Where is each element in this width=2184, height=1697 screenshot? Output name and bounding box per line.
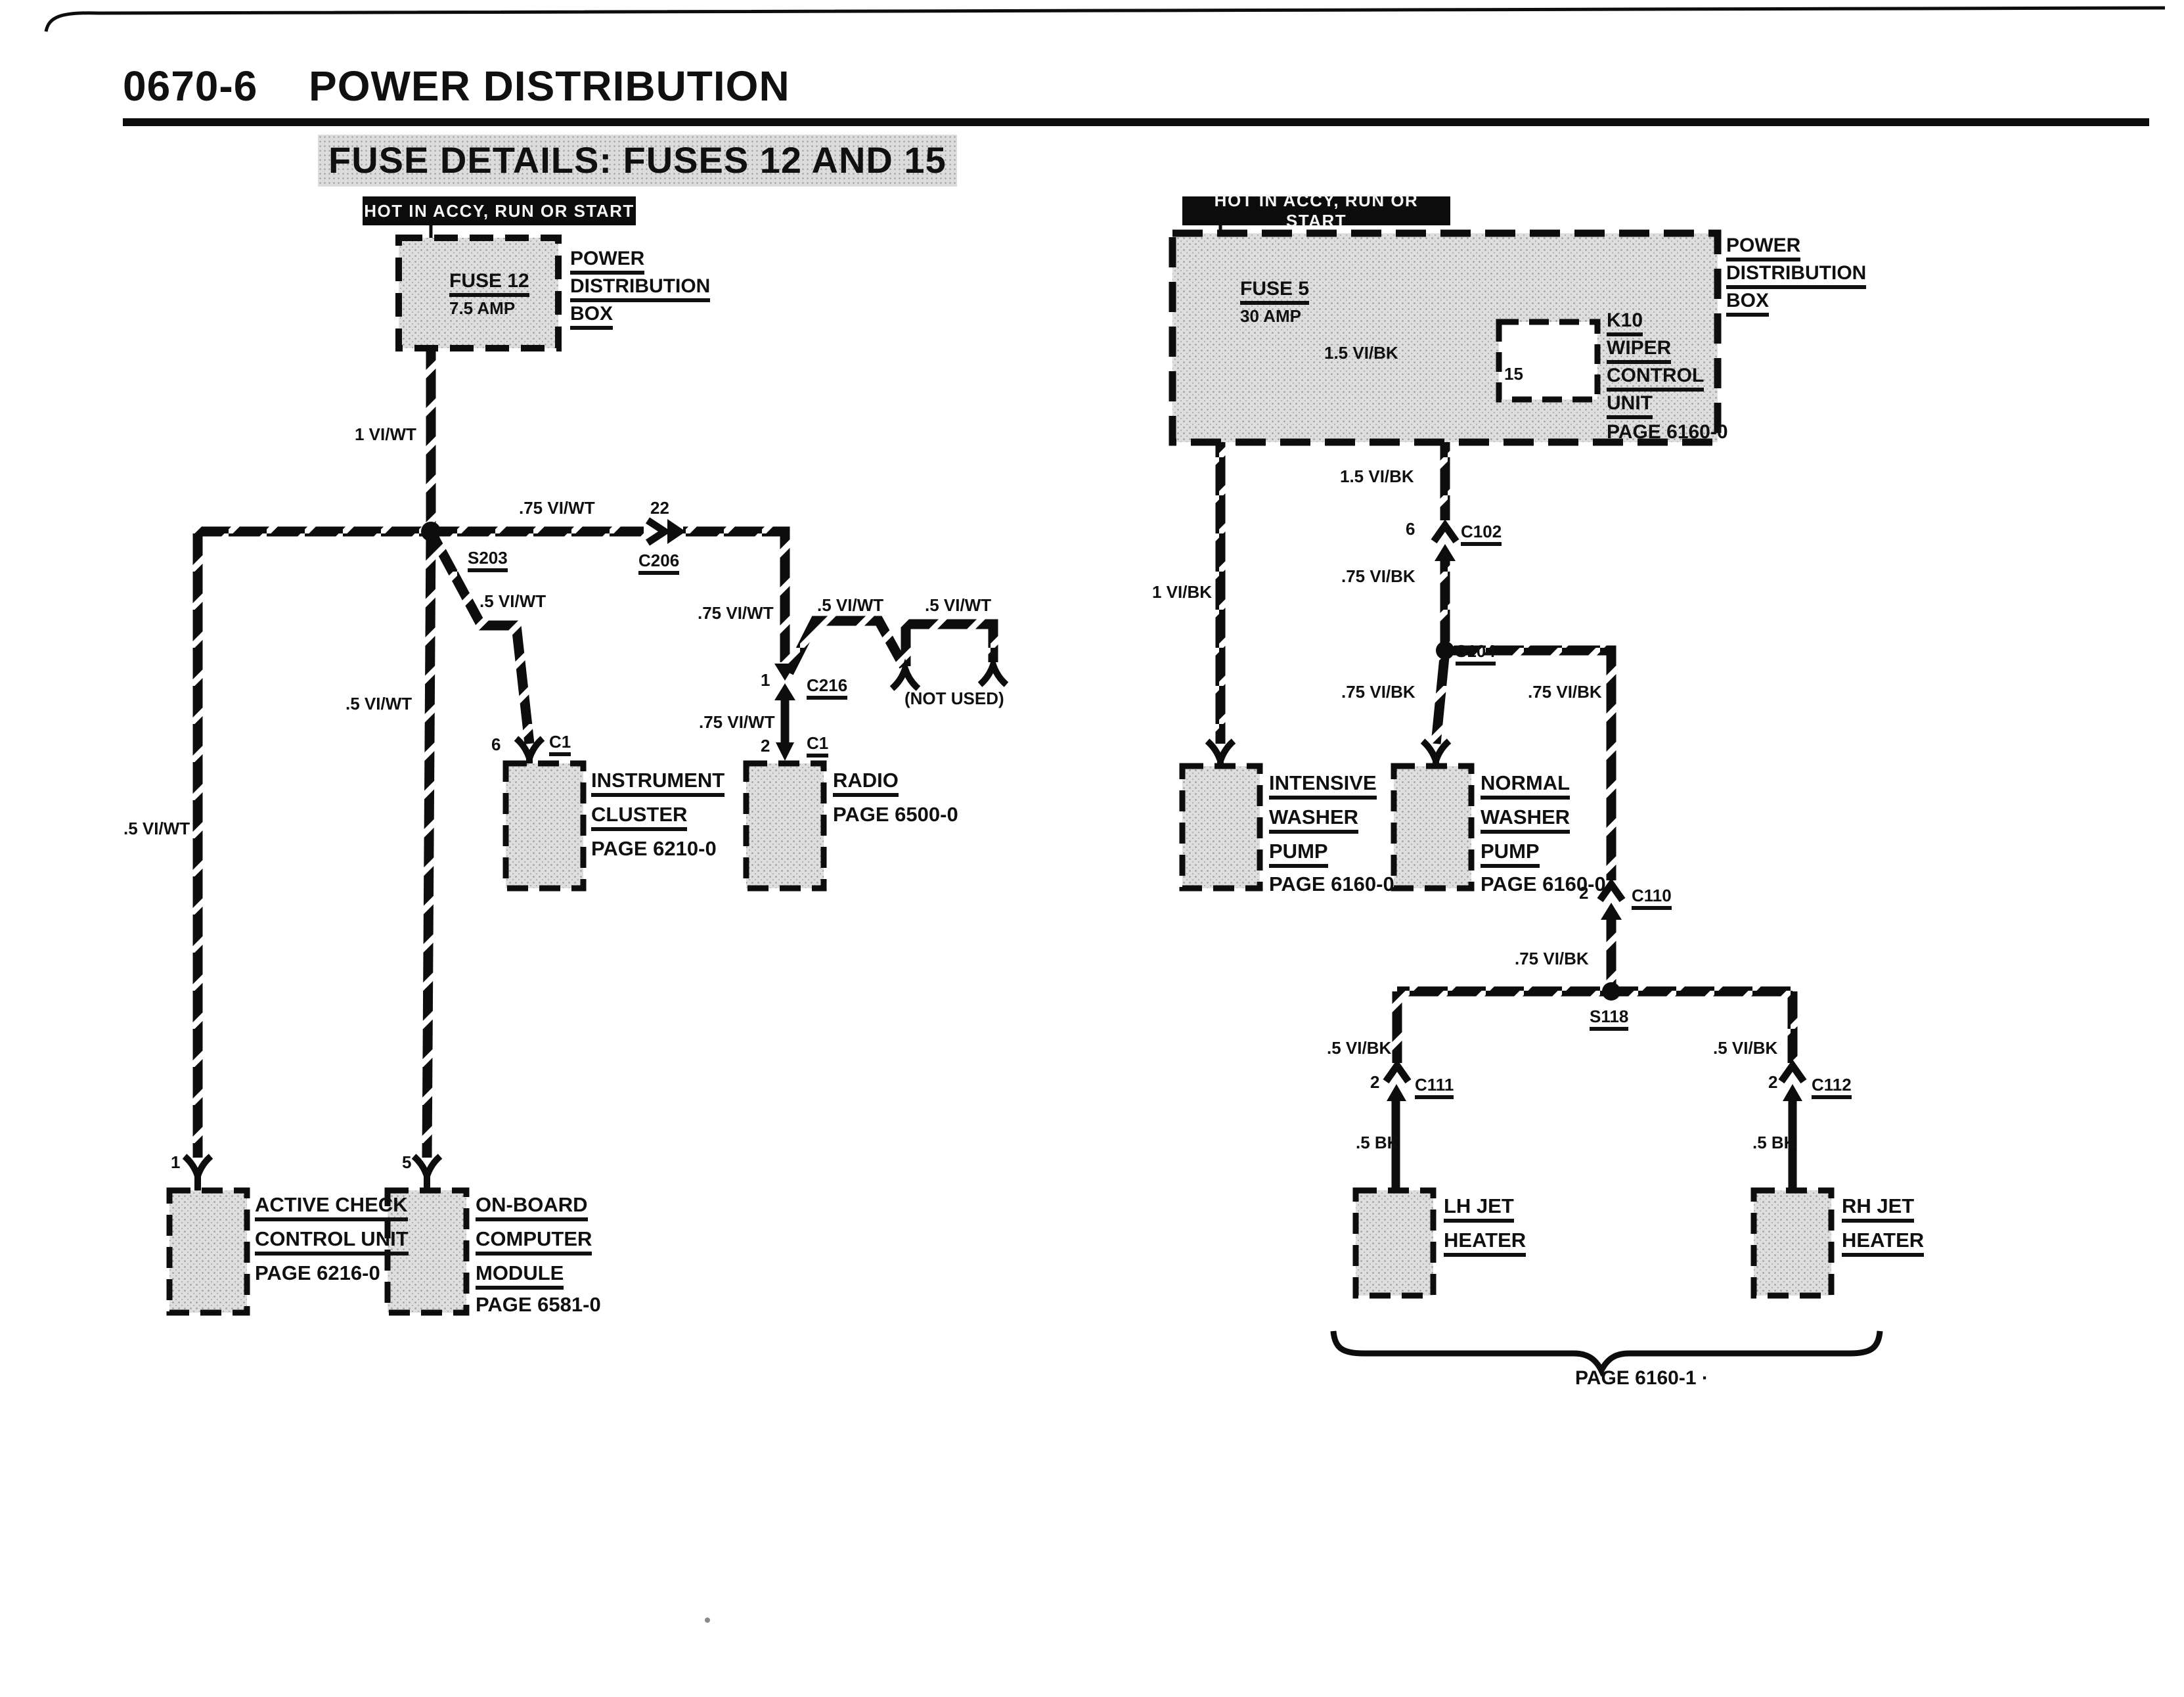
left-hot-banner: HOT IN ACCY, RUN OR START bbox=[363, 196, 636, 225]
page-subtitle: FUSE DETAILS: FUSES 12 AND 15 bbox=[318, 135, 957, 187]
intensive-washer-pump-box bbox=[1182, 766, 1260, 888]
radio-box bbox=[746, 763, 824, 888]
wire-label-5bk-rh: .5 BK bbox=[1752, 1134, 1796, 1152]
wire-label-75viwt-a: .75 VI/WT bbox=[519, 499, 595, 517]
wire-label-5viwt-obc: .5 VI/WT bbox=[345, 695, 412, 713]
fuse5-name: FUSE 5 bbox=[1240, 279, 1309, 305]
obc-label-2: COMPUTER bbox=[476, 1229, 592, 1256]
right-pdb-label-3: BOX bbox=[1726, 290, 1769, 317]
splice-s203-label: S203 bbox=[468, 549, 508, 572]
rh-jet-heater-box bbox=[1754, 1190, 1831, 1296]
wire-label-5vibk-rh: .5 VI/BK bbox=[1713, 1039, 1777, 1057]
instrument-label-2: CLUSTER bbox=[591, 804, 687, 831]
scan-speck bbox=[705, 1618, 710, 1623]
pin-15: 15 bbox=[1504, 365, 1523, 383]
splice-s104-label: S104 bbox=[1456, 643, 1496, 666]
radio-label-1: RADIO bbox=[833, 770, 899, 797]
normal-washer-pump-box bbox=[1394, 766, 1471, 888]
normal-pin-fork-icon bbox=[1423, 741, 1449, 766]
normal-label-2: WASHER bbox=[1481, 807, 1570, 834]
pin5-fork-icon bbox=[414, 1156, 440, 1190]
wire-label-5vibk-lh: .5 VI/BK bbox=[1327, 1039, 1391, 1057]
wire-label-5viwt-active: .5 VI/WT bbox=[123, 820, 190, 838]
component-boxes bbox=[169, 233, 1831, 1313]
obc-label-1: ON-BOARD bbox=[476, 1194, 588, 1221]
connector-c1a-label: C1 bbox=[549, 733, 571, 756]
connector-c206-arrow-icon bbox=[667, 519, 686, 544]
connector-c112-icon bbox=[1781, 1066, 1804, 1081]
notused-fork2-icon bbox=[980, 665, 1006, 685]
page-ref-brace-icon bbox=[1333, 1331, 1880, 1370]
intensive-label-3: PUMP bbox=[1269, 841, 1328, 868]
manual-page: 0670-6 POWER DISTRIBUTION FUSE DETAILS: … bbox=[0, 0, 2184, 1697]
wire-label-5viwt-instr: .5 VI/WT bbox=[479, 593, 546, 610]
pin-6: 6 bbox=[491, 736, 501, 754]
pin1-fork-icon bbox=[185, 1156, 211, 1190]
normal-label-3: PUMP bbox=[1481, 841, 1540, 868]
lh-jet-label-1: LH JET bbox=[1444, 1196, 1514, 1223]
wire-5viwt-obc bbox=[427, 532, 431, 1158]
active-label-1: ACTIVE CHECK bbox=[255, 1194, 408, 1221]
connector-c112-label: C112 bbox=[1812, 1076, 1852, 1099]
k10-label-2: WIPER bbox=[1607, 338, 1671, 364]
page-title: POWER DISTRIBUTION bbox=[309, 64, 790, 108]
fuse5-rating: 30 AMP bbox=[1240, 307, 1301, 325]
right-hot-banner: HOT IN ACCY, RUN OR START bbox=[1182, 196, 1450, 225]
k10-page: PAGE 6160-0 bbox=[1607, 422, 1728, 443]
page-ref-6160-1: PAGE 6160-1 · bbox=[1575, 1368, 1708, 1389]
k10-box bbox=[1499, 322, 1597, 399]
wire-label-5viwt-nu1: .5 VI/WT bbox=[817, 597, 883, 614]
pin-2-c1: 2 bbox=[761, 737, 770, 755]
wire-label-15vibk-h: 1.5 VI/BK bbox=[1324, 344, 1398, 362]
k10-label-1: K10 bbox=[1607, 310, 1643, 336]
doc-number: 0670-6 bbox=[123, 64, 257, 108]
right-pdb-label-2: DISTRIBUTION bbox=[1726, 263, 1866, 289]
connector-c110-label: C110 bbox=[1632, 887, 1672, 910]
wire-label-75vibk-2: .75 VI/BK bbox=[1341, 683, 1415, 701]
wire-75vibk-normal bbox=[1436, 650, 1445, 744]
k10-label-4: UNIT bbox=[1607, 393, 1653, 419]
junction-s104-icon bbox=[1436, 641, 1454, 660]
wire-label-15vibk-v: 1.5 VI/BK bbox=[1340, 468, 1414, 486]
connector-c1b-label: C1 bbox=[807, 735, 828, 758]
connector-c102-label: C102 bbox=[1461, 523, 1502, 546]
lh-jet-heater-box bbox=[1356, 1190, 1433, 1296]
lh-jet-label-2: HEATER bbox=[1444, 1230, 1526, 1257]
k10-label-3: CONTROL bbox=[1607, 365, 1704, 392]
wire-label-75vibk-4: .75 VI/BK bbox=[1515, 950, 1589, 968]
intensive-label-1: INTENSIVE bbox=[1269, 773, 1377, 800]
wire-label-5bk-lh: .5 BK bbox=[1356, 1134, 1399, 1152]
pin-2-c111: 2 bbox=[1370, 1074, 1379, 1091]
connector-c112-arrow-icon bbox=[1783, 1084, 1802, 1101]
wire-label-1vibk: 1 VI/BK bbox=[1152, 583, 1212, 601]
connector-c216-label: C216 bbox=[807, 677, 847, 700]
wire-label-75vibk-3: .75 VI/BK bbox=[1528, 683, 1602, 701]
pin-22: 22 bbox=[650, 499, 669, 517]
junction-s118-icon bbox=[1602, 982, 1620, 1001]
wire-5viwt-nu2 bbox=[906, 624, 993, 666]
active-page: PAGE 6216-0 bbox=[255, 1263, 380, 1284]
active-label-2: CONTROL UNIT bbox=[255, 1229, 409, 1256]
connector-c111-icon bbox=[1386, 1066, 1408, 1081]
radio-page: PAGE 6500-0 bbox=[833, 804, 958, 826]
pin-5-obc: 5 bbox=[402, 1154, 411, 1171]
intensive-pin-fork-icon bbox=[1207, 741, 1234, 766]
wire-5viwt-active bbox=[198, 532, 431, 1158]
instrument-label-1: INSTRUMENT bbox=[591, 770, 724, 797]
rh-jet-label-2: HEATER bbox=[1842, 1230, 1924, 1257]
radio-pin-arrow-icon bbox=[776, 742, 794, 761]
connector-c102-icon bbox=[1434, 526, 1456, 541]
left-pdb-label-3: BOX bbox=[570, 304, 613, 330]
connector-c111-label: C111 bbox=[1415, 1076, 1454, 1099]
obc-page: PAGE 6581-0 bbox=[476, 1294, 601, 1316]
left-pdb-label-1: POWER bbox=[570, 248, 644, 275]
connector-c110-arrow-icon bbox=[1601, 903, 1622, 920]
active-check-box bbox=[169, 1190, 247, 1313]
left-pdb-label-2: DISTRIBUTION bbox=[570, 276, 710, 302]
header-rule bbox=[123, 118, 2149, 126]
junction-s203-icon bbox=[421, 522, 441, 541]
fuse12-rating: 7.5 AMP bbox=[449, 300, 515, 317]
rh-jet-label-1: RH JET bbox=[1842, 1196, 1914, 1223]
connector-c206-label: C206 bbox=[638, 552, 679, 575]
pin-1-c216: 1 bbox=[761, 671, 770, 689]
pin-2-c112: 2 bbox=[1768, 1074, 1777, 1091]
pin-2-c110: 2 bbox=[1579, 884, 1588, 902]
connector-c102-arrow-icon bbox=[1435, 544, 1456, 561]
notused-fork1-icon bbox=[892, 669, 918, 689]
instrument-cluster-box bbox=[506, 763, 583, 888]
obc-label-3: MODULE bbox=[476, 1263, 564, 1290]
left-diagram-wires bbox=[198, 222, 993, 1158]
pin-6-c102: 6 bbox=[1406, 520, 1415, 538]
wire-5viwt-nu1 bbox=[789, 621, 904, 673]
connector-c216-arrow-icon bbox=[774, 683, 795, 700]
not-used-label: (NOT USED) bbox=[904, 690, 1004, 708]
right-pdb-label-1: POWER bbox=[1726, 235, 1800, 261]
instrument-page: PAGE 6210-0 bbox=[591, 838, 717, 860]
wiring-diagram-canvas bbox=[0, 0, 2184, 1697]
fuse12-name: FUSE 12 bbox=[449, 271, 529, 297]
wire-label-75viwt-b: .75 VI/WT bbox=[698, 604, 774, 622]
connector-c206-icon bbox=[648, 520, 665, 543]
wire-label-75viwt-c: .75 VI/WT bbox=[699, 713, 775, 731]
connector-c111-arrow-icon bbox=[1387, 1084, 1406, 1101]
wire-label-1viwt: 1 VI/WT bbox=[355, 426, 416, 443]
wire-75viwt-b bbox=[683, 532, 785, 662]
page-top-rule bbox=[46, 8, 2165, 32]
pin-1-active: 1 bbox=[171, 1154, 180, 1171]
intensive-page: PAGE 6160-0 bbox=[1269, 874, 1394, 895]
normal-label-1: NORMAL bbox=[1481, 773, 1570, 800]
splice-s118-label: S118 bbox=[1590, 1008, 1628, 1031]
wire-label-5viwt-nu2: .5 VI/WT bbox=[925, 597, 991, 614]
wire-label-75vibk-1: .75 VI/BK bbox=[1341, 568, 1415, 585]
intensive-label-2: WASHER bbox=[1269, 807, 1358, 834]
